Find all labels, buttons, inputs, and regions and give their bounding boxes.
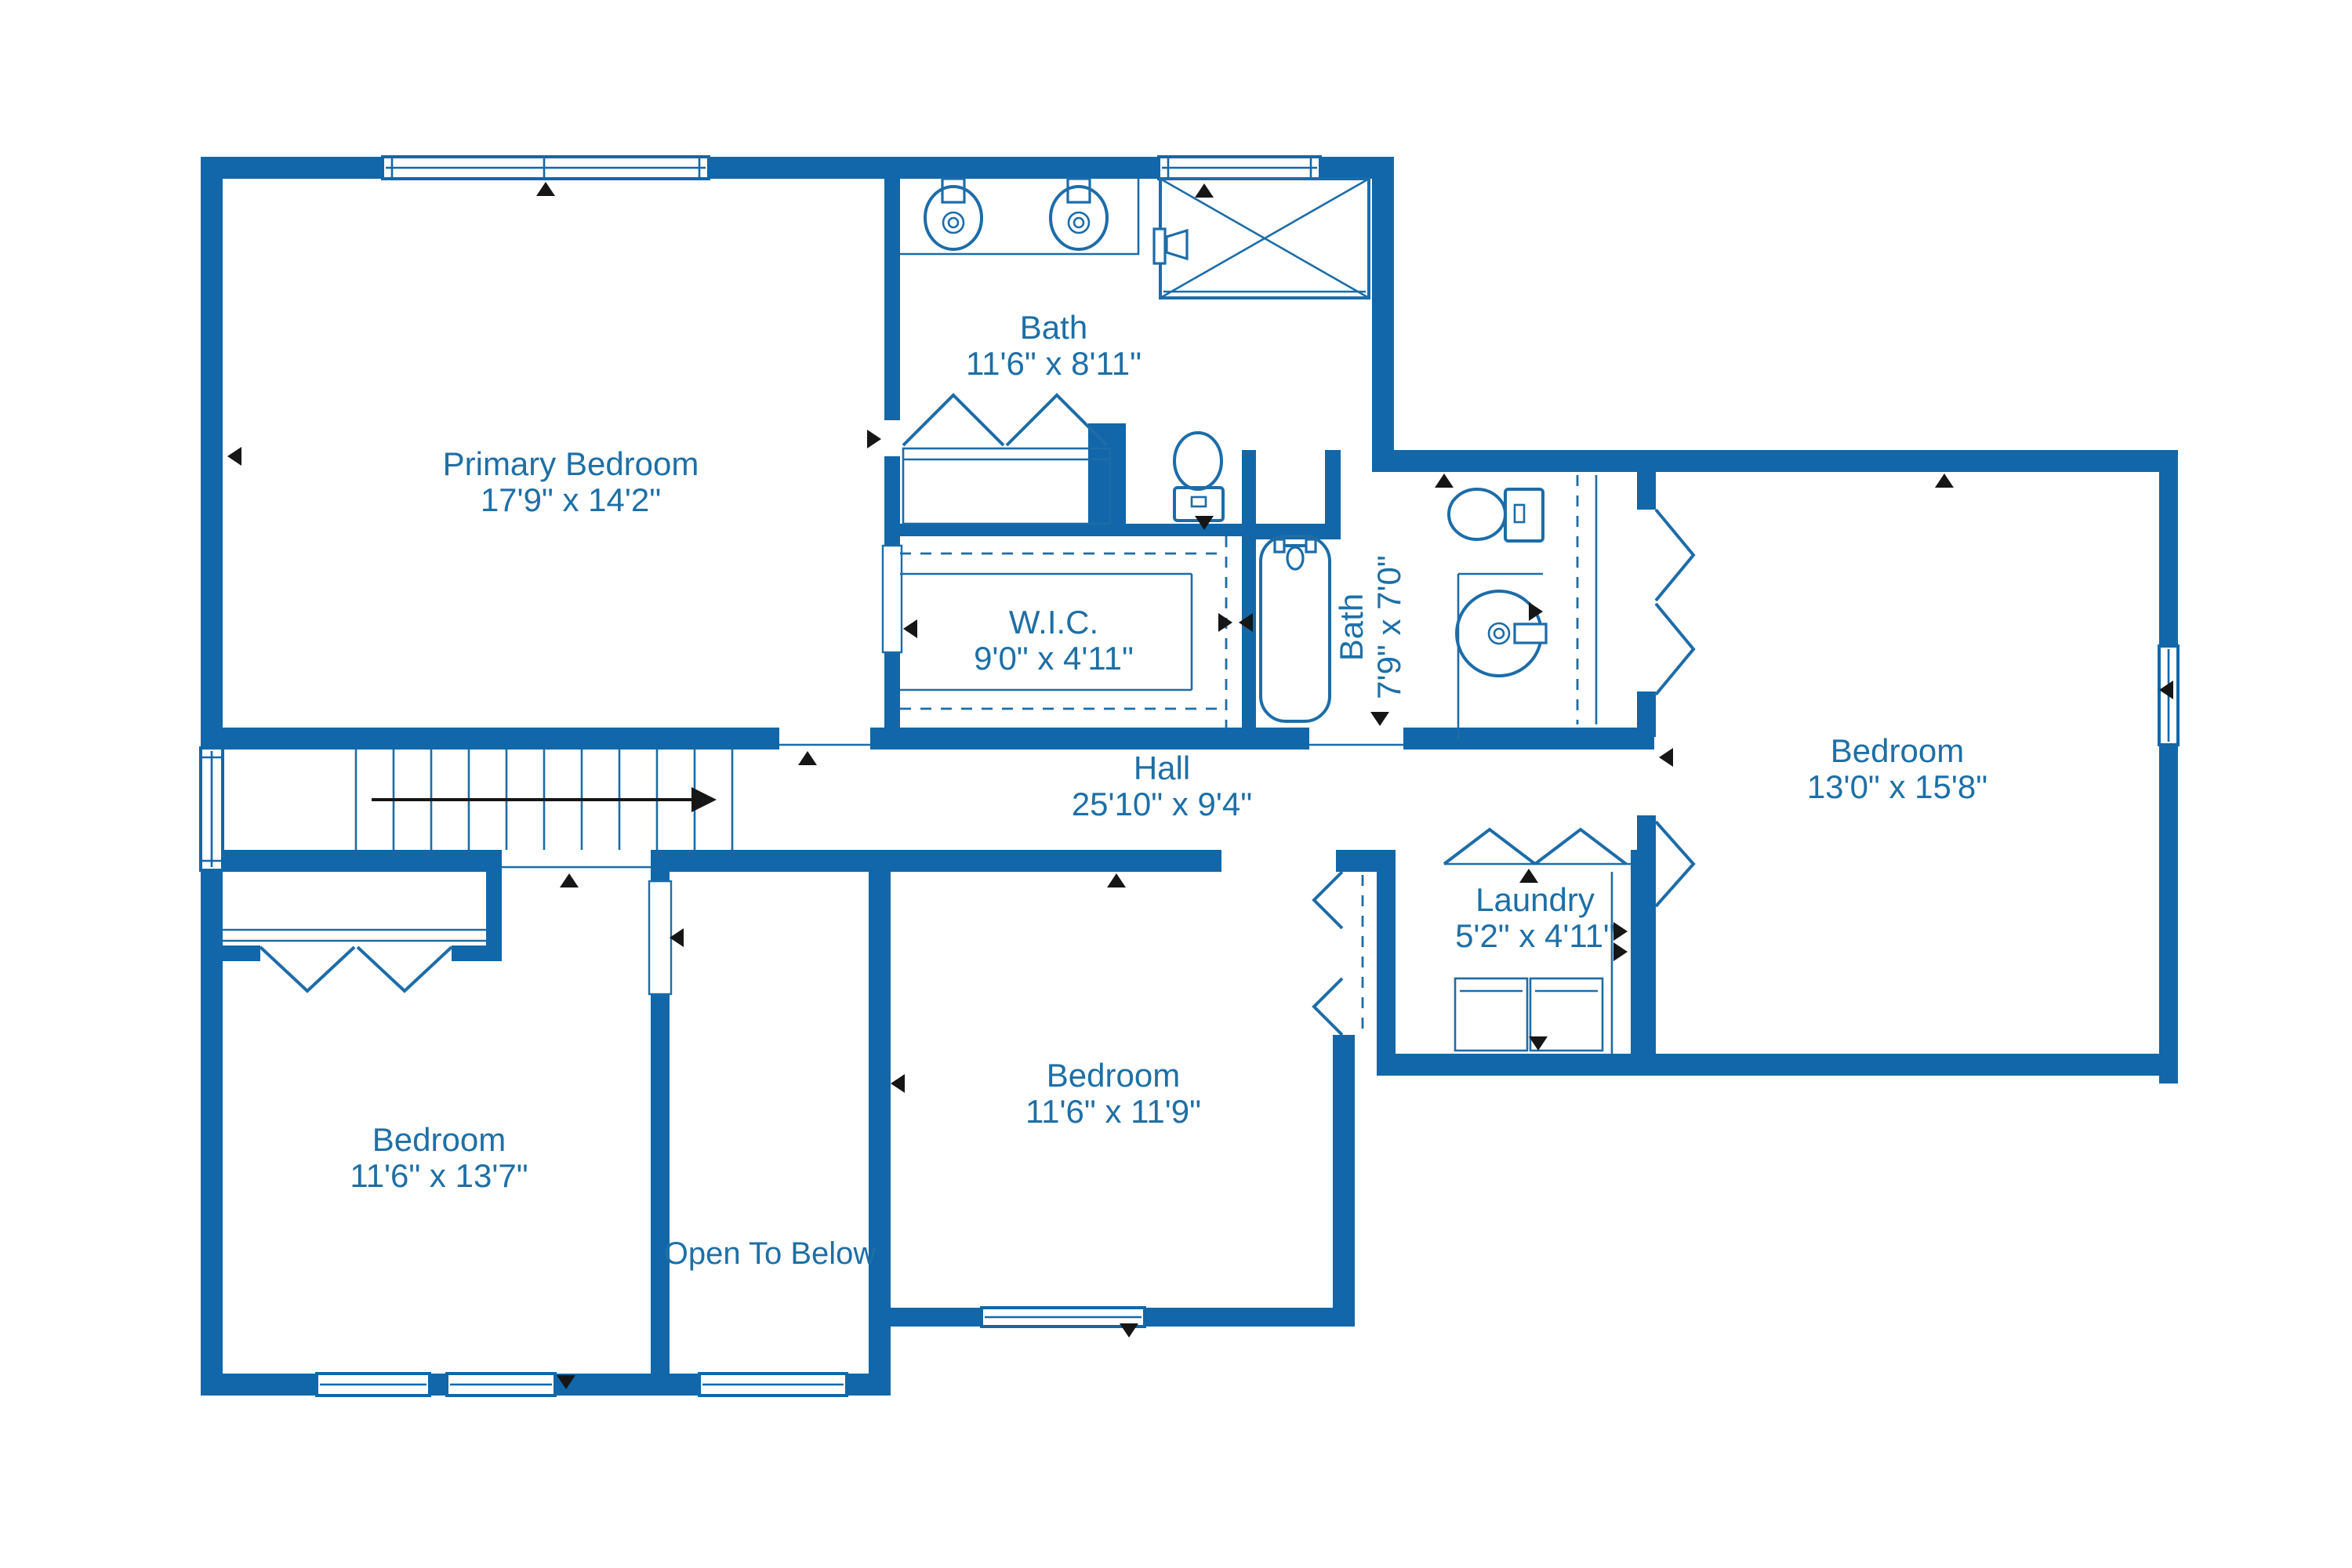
door-left-bedroom	[649, 881, 671, 994]
bifold-left-closet-a	[260, 947, 354, 991]
label-bath-hall: Bath 7'9" x 7'0"	[1333, 555, 1407, 699]
svg-text:Bath: Bath	[1333, 593, 1370, 661]
double-vanity-sink	[900, 179, 1138, 254]
left-bedroom-closet-shelf	[223, 930, 486, 941]
label-primary-bedroom: Primary Bedroom 17'9" x 14'2"	[443, 445, 699, 518]
bifold-right-closet-b	[1656, 604, 1693, 695]
shower-stall	[1154, 179, 1369, 298]
toilet-hall-bath	[1449, 489, 1543, 541]
window-stair-left	[201, 748, 223, 870]
label-bedroom-middle: Bedroom 11'6" x 11'9"	[1025, 1057, 1201, 1130]
bath-linen-closet	[903, 448, 1110, 524]
label-laundry: Laundry 5'2" x 4'11"	[1455, 881, 1615, 954]
door-swing-bedroom-right	[1656, 822, 1693, 906]
label-bedroom-left: Bedroom 11'6" x 13'7"	[350, 1121, 528, 1194]
tub-faucet-icon	[1287, 547, 1303, 569]
svg-text:Laundry: Laundry	[1475, 881, 1595, 918]
floor-plan-canvas: Primary Bedroom 17'9" x 14'2" Bath 11'6"…	[0, 0, 2352, 1568]
svg-text:Open To Below: Open To Below	[664, 1236, 877, 1271]
bifold-left-closet-b	[358, 947, 452, 991]
svg-text:11'6" x 8'11": 11'6" x 8'11"	[966, 345, 1142, 382]
right-bedroom-closet	[1577, 475, 1596, 724]
bathtub	[1261, 536, 1330, 721]
svg-text:17'9" x 14'2": 17'9" x 14'2"	[481, 481, 661, 518]
window-open-below-bottom	[699, 1374, 847, 1396]
svg-text:Bedroom: Bedroom	[1047, 1057, 1180, 1094]
svg-text:25'10" x 9'4": 25'10" x 9'4"	[1072, 786, 1252, 822]
svg-text:9'0" x 4'11": 9'0" x 4'11"	[974, 640, 1134, 677]
label-bath-main: Bath 11'6" x 8'11"	[966, 309, 1142, 382]
label-hall: Hall 25'10" x 9'4"	[1072, 750, 1252, 822]
opening-primary-to-wic	[883, 546, 902, 652]
laundry-door-right	[1535, 829, 1626, 864]
label-wic: W.I.C. 9'0" x 4'11"	[974, 604, 1134, 677]
floor-plan-svg: Primary Bedroom 17'9" x 14'2" Bath 11'6"…	[0, 0, 2352, 1568]
sink-faucet-icon	[1515, 624, 1546, 643]
bifold-right-closet-a	[1656, 510, 1693, 601]
svg-text:7'9" x 7'0": 7'9" x 7'0"	[1370, 555, 1407, 699]
svg-text:Primary Bedroom: Primary Bedroom	[443, 445, 699, 482]
svg-text:Bedroom: Bedroom	[1831, 732, 1964, 769]
svg-text:11'6" x 13'7": 11'6" x 13'7"	[350, 1157, 528, 1194]
svg-text:W.I.C.: W.I.C.	[1009, 604, 1098, 641]
staircase	[356, 750, 732, 850]
round-vanity-sink	[1457, 574, 1546, 740]
toilet-main-bath	[1174, 433, 1223, 521]
bifold-bath-closet-left	[903, 395, 1004, 445]
label-open-to-below: Open To Below	[664, 1236, 877, 1271]
window-primary-top	[383, 157, 709, 179]
washer	[1455, 978, 1527, 1051]
label-bedroom-right: Bedroom 13'0" x 15'8"	[1807, 732, 1987, 805]
svg-text:Bedroom: Bedroom	[372, 1121, 506, 1158]
svg-text:11'6" x 11'9": 11'6" x 11'9"	[1025, 1093, 1201, 1130]
laundry-door-left	[1444, 829, 1535, 864]
stairs-arrow-head	[691, 787, 717, 812]
bifold-middle-closet-b	[1314, 978, 1342, 1035]
svg-text:13'0" x 15'8": 13'0" x 15'8"	[1807, 768, 1987, 805]
shower-head-icon	[1154, 229, 1165, 263]
svg-text:Bath: Bath	[1020, 309, 1087, 346]
svg-text:5'2" x 4'11": 5'2" x 4'11"	[1455, 917, 1615, 954]
window-bath-top	[1159, 157, 1320, 179]
svg-text:Hall: Hall	[1134, 750, 1190, 786]
bifold-middle-closet-a	[1314, 872, 1342, 928]
